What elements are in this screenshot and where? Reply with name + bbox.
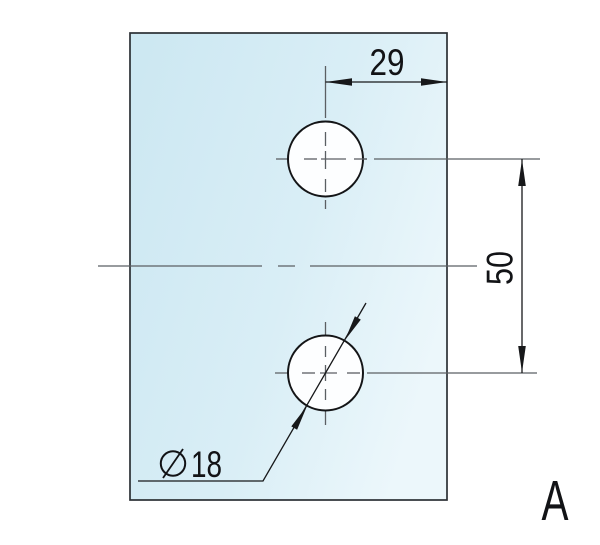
- view-label: A: [542, 469, 569, 533]
- dim-50-arrow-top-icon: [518, 160, 526, 187]
- diameter-label: 18: [191, 444, 222, 485]
- dim-29-label: 29: [370, 42, 405, 83]
- drawing-canvas: 29 50 18 A: [0, 0, 600, 545]
- technical-drawing: 29 50 18 A: [0, 0, 600, 545]
- dim-50-arrow-bottom-icon: [518, 346, 526, 373]
- dim-50: 50: [480, 159, 526, 373]
- dim-50-label: 50: [480, 251, 521, 285]
